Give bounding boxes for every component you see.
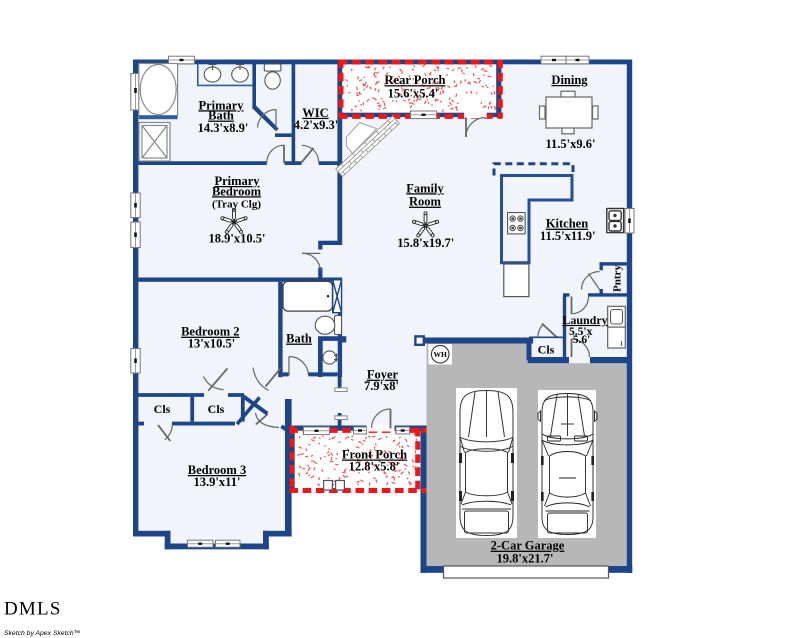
- svg-text:18.9'x10.5': 18.9'x10.5': [209, 231, 266, 245]
- svg-text:5.6': 5.6': [573, 334, 591, 346]
- svg-text:DMLS: DMLS: [4, 599, 62, 620]
- svg-text:Rear Porch: Rear Porch: [385, 73, 446, 87]
- svg-text:12.8'x5.8': 12.8'x5.8': [349, 460, 400, 474]
- svg-text:13'x10.5': 13'x10.5': [188, 337, 236, 351]
- svg-text:11.5'x9.6': 11.5'x9.6': [545, 137, 595, 151]
- svg-text:11.5'x11.9': 11.5'x11.9': [540, 229, 596, 243]
- svg-text:Cls: Cls: [154, 402, 171, 416]
- svg-text:Bedroom: Bedroom: [212, 184, 262, 198]
- svg-text:Room: Room: [409, 195, 442, 209]
- svg-text:15.8'x19.7': 15.8'x19.7': [397, 236, 454, 250]
- svg-text:Dining: Dining: [551, 73, 588, 87]
- svg-text:Family: Family: [406, 181, 444, 195]
- svg-text:Sketch by Apex Sketch™: Sketch by Apex Sketch™: [4, 630, 80, 637]
- svg-text:13.9'x11': 13.9'x11': [194, 475, 241, 489]
- svg-text:19.8'x21.7': 19.8'x21.7': [497, 551, 554, 565]
- svg-text:15.6'x5.4': 15.6'x5.4': [388, 86, 439, 100]
- svg-text:Cls: Cls: [538, 342, 555, 356]
- svg-text:Pntry: Pntry: [612, 265, 624, 292]
- svg-text:14.3'x8.9': 14.3'x8.9': [198, 121, 249, 135]
- svg-text:WH: WH: [434, 350, 448, 359]
- svg-text:Cls: Cls: [208, 402, 225, 416]
- svg-text:(Tray Clg): (Tray Clg): [212, 199, 261, 211]
- svg-text:Bath: Bath: [286, 332, 312, 346]
- svg-text:Laundry: Laundry: [562, 313, 607, 327]
- svg-text:7.9'x8': 7.9'x8': [364, 379, 399, 393]
- svg-text:4.2'x9.3': 4.2'x9.3': [294, 118, 338, 132]
